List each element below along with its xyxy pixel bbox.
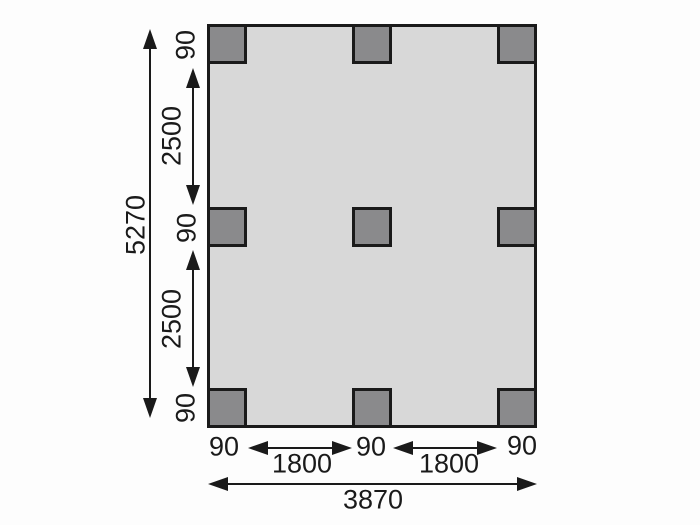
dim-label-left-90-bottom: 90: [173, 393, 200, 423]
dim-label-left-90-middle: 90: [174, 213, 201, 243]
post-middle-left: [207, 207, 247, 247]
post-top-left: [207, 24, 247, 64]
dim-arrow-left-2500-top: [186, 68, 200, 205]
dim-label-overall-width: 3870: [343, 487, 403, 514]
post-top-center: [352, 24, 392, 64]
post-bottom-left: [207, 388, 247, 428]
post-top-right: [497, 24, 537, 64]
dim-label-bottom-90-middle: 90: [356, 434, 386, 461]
dim-label-bottom-90-right: 90: [507, 433, 537, 460]
dim-label-bottom-1800-right: 1800: [419, 451, 479, 478]
post-middle-right: [497, 207, 537, 247]
dim-label-bottom-1800-left: 1800: [272, 451, 332, 478]
post-bottom-center: [352, 388, 392, 428]
dim-label-left-2500-bottom: 2500: [159, 289, 186, 349]
dim-arrow-left-2500-bottom: [186, 250, 200, 387]
dim-label-left-2500-top: 2500: [159, 106, 186, 166]
dim-label-overall-height: 5270: [123, 195, 150, 255]
dim-label-left-90-top: 90: [173, 30, 200, 60]
post-bottom-right: [497, 388, 537, 428]
dim-label-bottom-90-left: 90: [209, 434, 239, 461]
diagram-canvas: 5270 90 2500 90 2500 90 90 1800 90 1800 …: [0, 0, 700, 525]
plan-outline: [207, 24, 537, 428]
post-middle-center: [352, 207, 392, 247]
